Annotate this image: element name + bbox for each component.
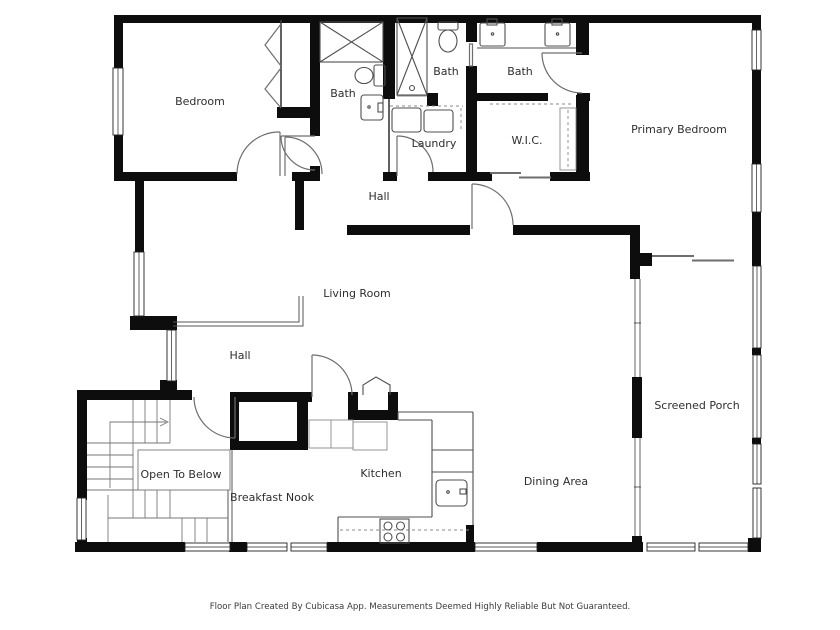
- wic-sliding-door: [490, 173, 551, 178]
- window: [753, 444, 761, 484]
- wall: [752, 15, 761, 30]
- kitchen-door: [312, 355, 352, 397]
- window: [167, 330, 176, 381]
- wall: [277, 107, 310, 118]
- wall: [75, 542, 185, 552]
- porch-sliding-door: [652, 256, 734, 261]
- window: [753, 266, 761, 348]
- wall: [537, 542, 643, 552]
- room-label-primary-bedroom: Primary Bedroom: [631, 123, 727, 136]
- shower-icon: [320, 22, 383, 62]
- window: [77, 498, 86, 540]
- wall: [428, 172, 466, 181]
- water-heater-icon: [363, 377, 390, 395]
- wall: [295, 177, 304, 230]
- room-label-bath-right: Bath: [507, 65, 533, 78]
- wall: [114, 15, 761, 23]
- room-label-breakfast-nook: Breakfast Nook: [230, 491, 315, 504]
- wall: [114, 15, 123, 70]
- wall: [310, 17, 320, 136]
- footer-disclaimer: Floor Plan Created By Cubicasa App. Meas…: [210, 602, 631, 612]
- railing: [173, 296, 303, 326]
- window: [752, 30, 761, 70]
- kitchen-bottom-counter: [338, 517, 470, 543]
- window: [475, 543, 537, 551]
- room-label-living-room: Living Room: [323, 287, 391, 300]
- window: [752, 164, 761, 212]
- window: [753, 488, 761, 538]
- room-label-screened-porch: Screened Porch: [654, 399, 739, 412]
- bath-left-door: [281, 136, 315, 170]
- wall: [513, 225, 640, 235]
- window: [647, 543, 695, 551]
- wall: [466, 15, 477, 42]
- wall: [130, 316, 177, 330]
- wall: [632, 377, 642, 438]
- wall: [78, 390, 192, 400]
- wall: [466, 93, 548, 101]
- window: [134, 252, 144, 316]
- room-label-hall-upper: Hall: [368, 190, 389, 203]
- window: [291, 543, 327, 551]
- wall: [466, 172, 492, 181]
- window: [753, 355, 761, 438]
- hall-door: [472, 184, 513, 229]
- room-label-open-to-below: Open To Below: [140, 468, 221, 481]
- window: [699, 543, 748, 551]
- bath-right-door: [542, 53, 582, 93]
- wall: [752, 438, 761, 444]
- closet-bifold-door: [265, 20, 281, 108]
- room-label-hall-lower: Hall: [229, 349, 250, 362]
- wall: [427, 93, 438, 106]
- wall: [752, 212, 761, 266]
- wall: [752, 348, 761, 355]
- stove-icon: [380, 519, 409, 543]
- closet-door: [194, 397, 235, 438]
- wall: [114, 172, 237, 181]
- wall: [347, 225, 470, 235]
- wall: [576, 15, 589, 55]
- window: [113, 68, 123, 135]
- wall: [229, 542, 247, 552]
- floor-plan-canvas: Bedroom Bath Bath Bath Laundry W.I.C. Pr…: [0, 0, 840, 630]
- wall: [638, 253, 652, 266]
- pocket-door: [470, 44, 473, 66]
- shower-icon: [397, 18, 427, 95]
- kitchen-cabinets: [309, 420, 387, 450]
- toilet-icon: [438, 22, 458, 52]
- wall: [748, 538, 761, 552]
- room-label-dining-area: Dining Area: [524, 475, 588, 488]
- wall: [466, 66, 477, 178]
- wall: [77, 390, 87, 500]
- room-label-kitchen: Kitchen: [360, 467, 401, 480]
- floor-plan-page: Bedroom Bath Bath Bath Laundry W.I.C. Pr…: [0, 0, 840, 630]
- room-label-bath-left: Bath: [330, 87, 356, 100]
- dryer-icon: [424, 110, 453, 132]
- wall: [348, 410, 398, 420]
- room-label-laundry: Laundry: [412, 137, 457, 150]
- room-label-bedroom: Bedroom: [175, 95, 225, 108]
- sink-icon: [361, 95, 383, 120]
- window: [247, 543, 287, 551]
- room-label-wic: W.I.C.: [511, 134, 542, 147]
- wall: [576, 95, 589, 181]
- wall: [383, 15, 395, 99]
- toilet-icon: [355, 65, 385, 86]
- wall: [383, 172, 397, 181]
- wall: [630, 225, 640, 279]
- window: [185, 543, 230, 551]
- wall: [466, 525, 474, 544]
- wall: [230, 392, 308, 402]
- wall: [135, 172, 144, 252]
- room-label-bath-middle: Bath: [433, 65, 459, 78]
- kitchen-sink-icon: [436, 480, 467, 506]
- vanity-sink-icon: [477, 19, 576, 48]
- wall: [752, 70, 761, 164]
- wall: [230, 441, 308, 450]
- kitchen-counter: [398, 412, 473, 525]
- washer-icon: [392, 108, 421, 132]
